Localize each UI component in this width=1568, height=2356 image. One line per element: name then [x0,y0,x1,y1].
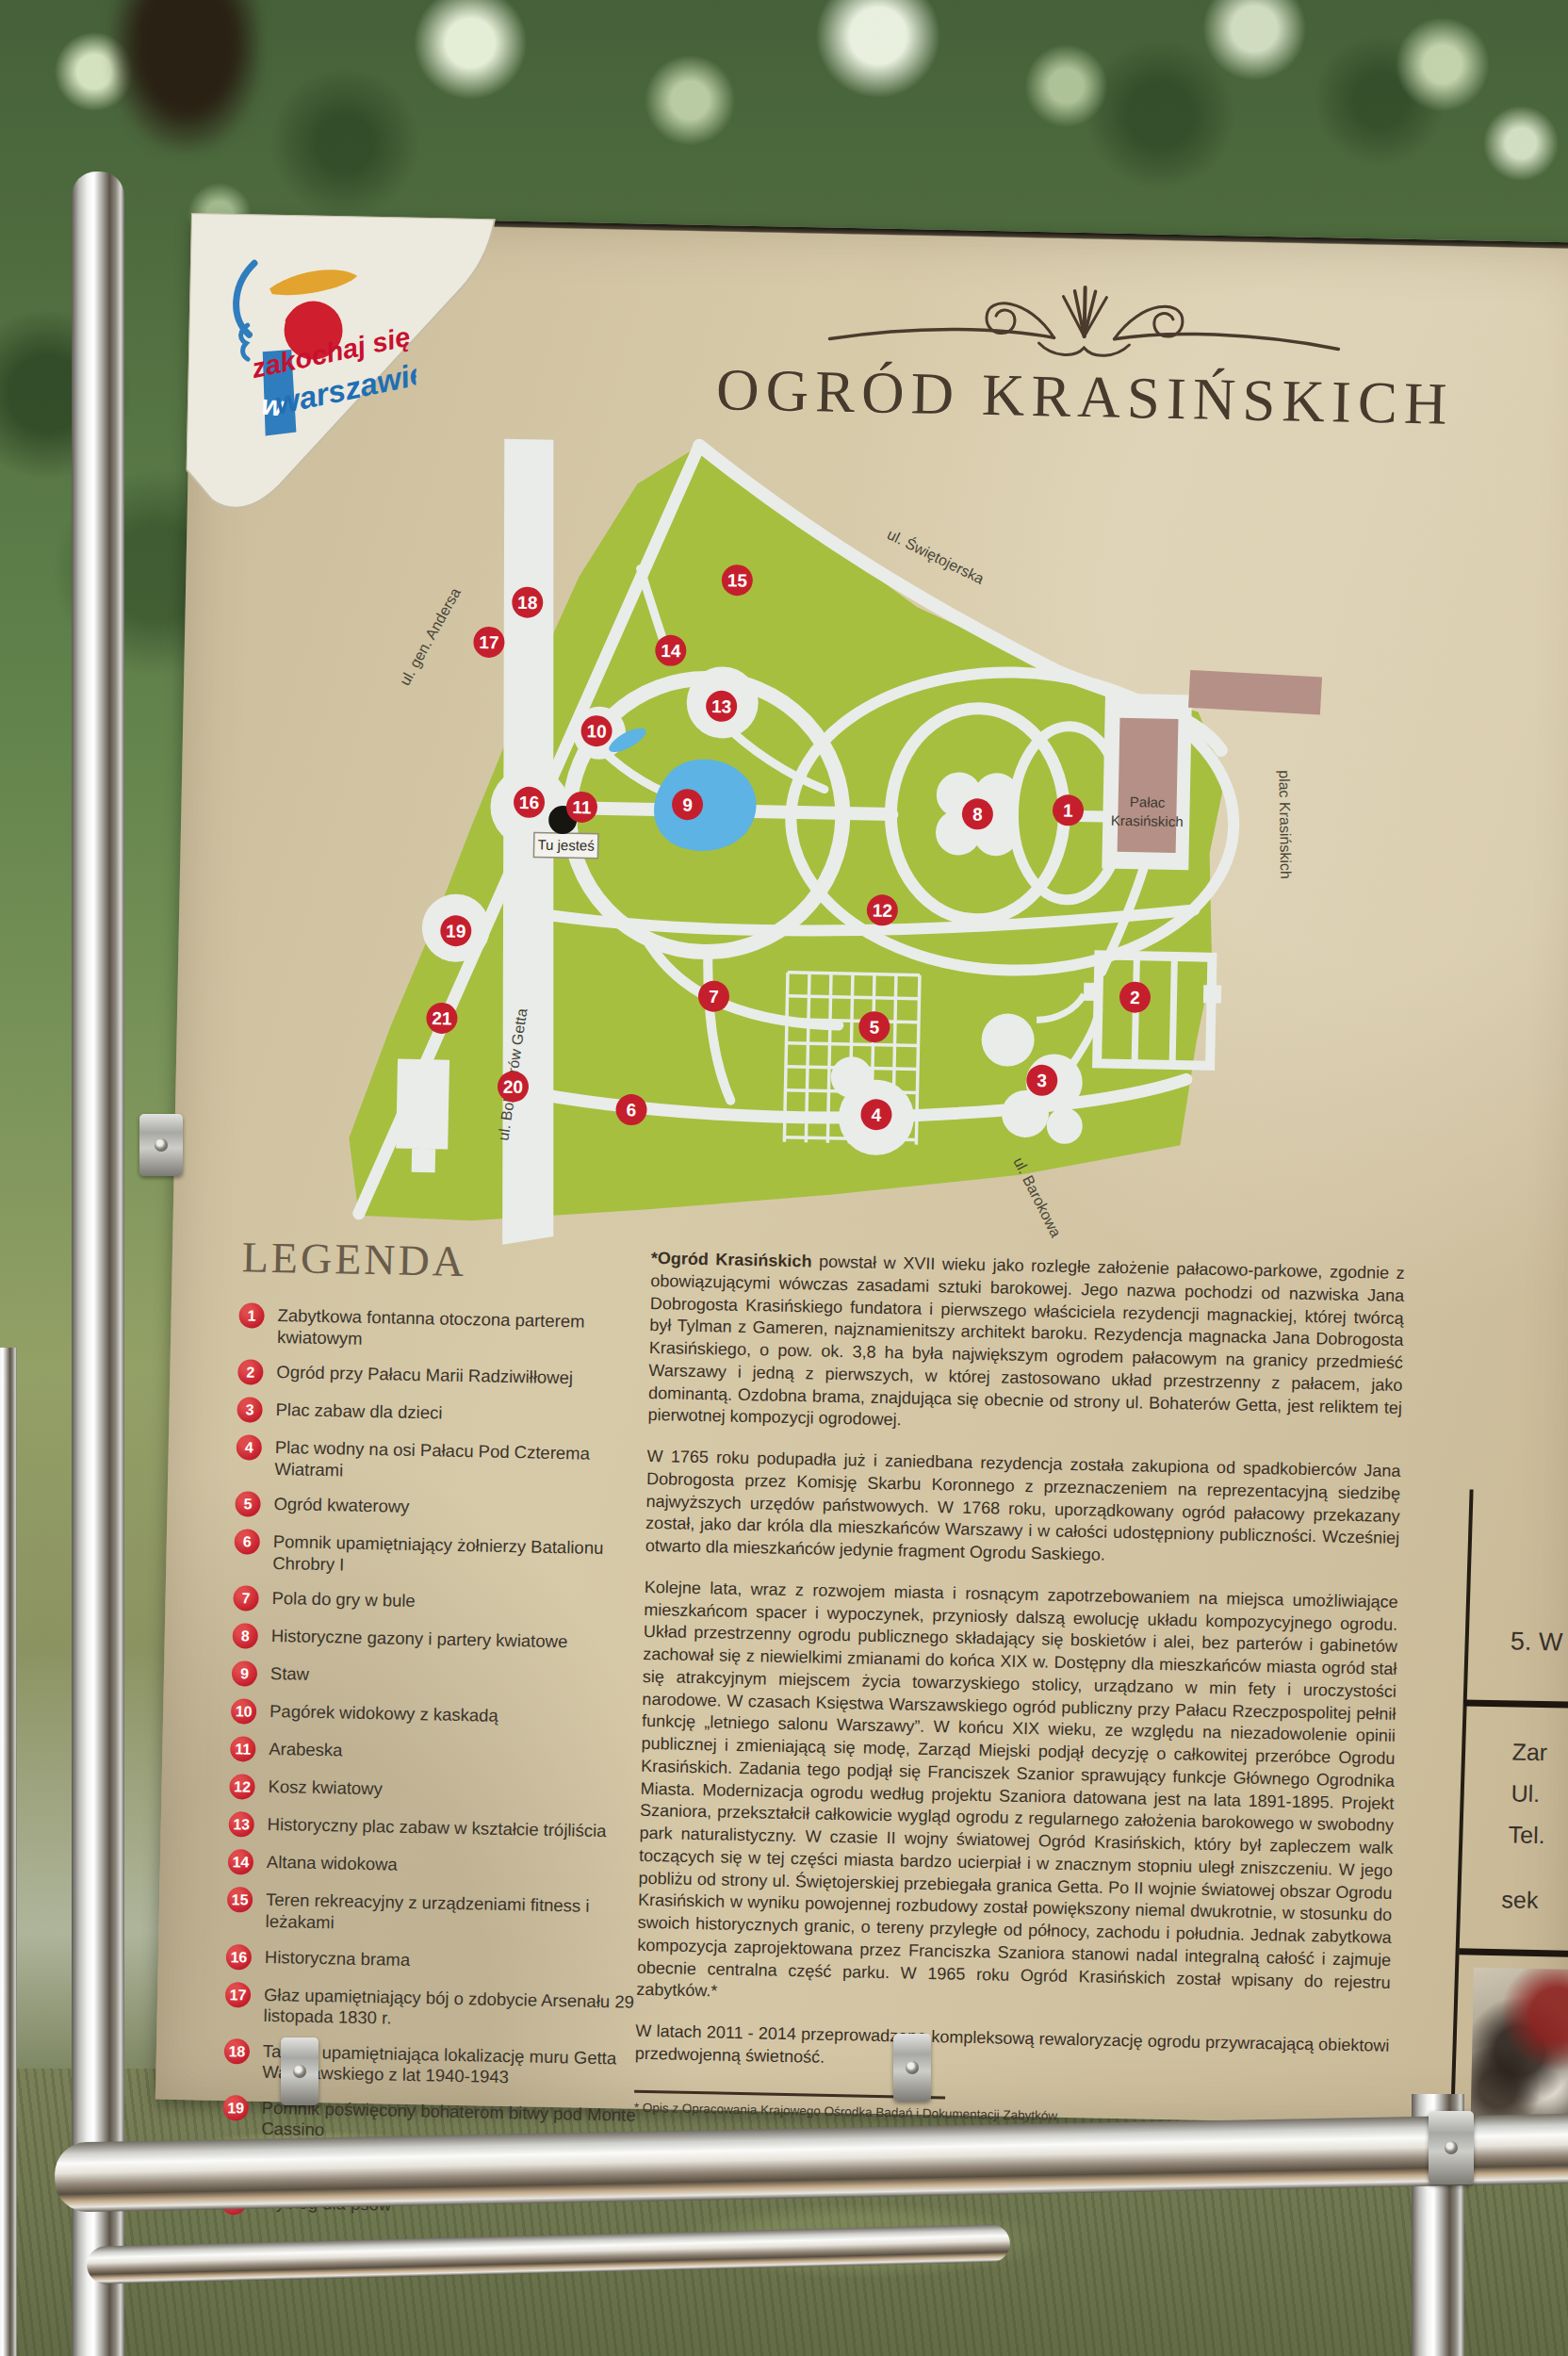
legend-item: 11Arabeska [230,1736,654,1770]
legend-item: 6Pomnik upamiętniający żołnierzy Batalio… [234,1529,659,1581]
svg-text:8: 8 [972,805,983,825]
legend-number-badge: 18 [224,2038,251,2065]
legend-number-badge: 2 [237,1359,264,1385]
legend-item-label: Pola do gry w bule [271,1586,416,1612]
legend-number-badge: 17 [225,1982,252,2008]
legend-number-badge: 16 [226,1944,253,1971]
svg-text:1: 1 [1063,800,1073,820]
weathered-photo-fragment [1471,1968,1568,2120]
mounting-clamp [1429,2111,1474,2184]
paragraphs: *Ogród Krasińskich powstał w XVII wieku … [635,1248,1405,2080]
legend-title: LEGENDA [241,1232,664,1290]
svg-text:2: 2 [1130,988,1140,1007]
svg-text:20: 20 [503,1077,524,1097]
svg-text:13: 13 [711,696,732,716]
legend-item: 1Zabytkowa fontanna otoczona parterem kw… [238,1302,663,1355]
svg-text:19: 19 [446,921,466,941]
legend-item-label: Plac wodny na osi Pałacu Pod Czterema Wi… [274,1435,661,1487]
svg-text:11: 11 [572,797,592,817]
palace-label-line2: Krasińskich [1111,812,1184,830]
svg-text:6: 6 [627,1100,637,1120]
tree-trunk [111,0,262,151]
street-label-plac: plac Krasińskich [1276,770,1294,879]
you-are-here-label: Tu jesteś [537,836,595,853]
legend-item-label: Zabytkowa fontanna otoczona parterem kwi… [277,1303,663,1355]
legend-item-label: Teren rekreacyjny z urządzeniami fitness… [265,1888,651,1939]
park-map: Pałac Krasińskich ul. gen. Andersa ul. Ś… [306,402,1426,1282]
legend-item-label: Głaz upamiętniający bój o zdobycie Arsen… [263,1982,649,2034]
body-paragraph: Kolejne lata, wraz z rozwojem miasta i r… [636,1577,1398,2017]
legend-item: 17Głaz upamiętniający bój o zdobycie Ars… [224,1982,649,2035]
side-panel-rule-top [1464,1699,1568,1709]
photo-of-park-information-sign: { "sign": { "title": "OGRÓD KRASIŃSKICH"… [0,0,1568,2356]
legend-number-badge: 15 [227,1887,253,1913]
side-panel-text: sek [1501,1886,1538,1914]
legend-item: 3Plac zabaw dla dzieci [237,1397,661,1431]
legend-number-badge: 14 [228,1849,254,1875]
legend-item: 10Pagórek widokowy z kaskadą [231,1699,655,1733]
legend-number-badge: 11 [230,1736,256,1762]
legend-number-badge: 3 [237,1397,263,1423]
legend-item: 4Plac wodny na osi Pałacu Pod Czterema W… [236,1434,661,1487]
legend-item-label: Ogród kwaterowy [273,1492,409,1517]
mounting-clamp [281,2037,318,2105]
legend-item-label: Arabeska [269,1737,343,1761]
legend-item-label: Pomnik upamiętniający żołnierzy Batalion… [272,1530,659,1581]
legend-number-badge: 6 [234,1529,260,1555]
body-paragraph: W latach 2011 - 2014 przeprowadzono komp… [635,2021,1390,2081]
svg-text:17: 17 [479,632,499,652]
left-steel-post [72,172,124,2356]
legend-item-label: Plac zabaw dla dzieci [275,1398,442,1424]
legend-number-badge: 9 [232,1661,258,1688]
legend-item-label: Historyczne gazony i partery kwiatowe [271,1624,568,1653]
legend-item-label: Historyczna brama [265,1944,411,1971]
legend-number-badge: 10 [231,1699,257,1726]
side-panel-text: Tel. [1508,1821,1544,1849]
svg-text:7: 7 [709,987,719,1006]
legend-item: 9Staw [232,1661,656,1695]
legend-item-label: Pagórek widokowy z kaskadą [269,1699,498,1726]
svg-text:16: 16 [519,793,540,812]
legend-number-badge: 12 [229,1774,255,1800]
side-panel-rule-bottom [1459,1948,1568,1957]
side-panel-text: Ul. [1511,1779,1540,1808]
svg-text:5: 5 [869,1017,879,1037]
legend-item: 8Historyczne gazony i partery kwiatowe [232,1624,656,1658]
legend-item-label: Staw [270,1661,310,1685]
side-panel-text: 5. W [1511,1627,1563,1657]
svg-text:12: 12 [873,900,893,920]
legend-number-badge: 5 [235,1491,261,1517]
legend-item-label: Altana widokowa [267,1850,398,1875]
svg-text:18: 18 [517,593,538,613]
legend-number-badge: 4 [236,1434,262,1461]
legend-item: 13Historyczny plac zabaw w kształcie tró… [228,1811,652,1845]
body-paragraph: W 1765 roku podupadła już i zaniedbana r… [645,1446,1401,1573]
description-text: *Ogród Krasińskich powstał w XVII wieku … [634,1248,1405,2129]
body-paragraph: *Ogród Krasińskich powstał w XVII wieku … [647,1248,1405,1442]
information-sign-board: w zakochaj się warszawie OGRÓD KRASIŃSKI… [155,215,1568,2128]
mounting-clamp [139,1114,183,1176]
legend-item-label: Tablica upamiętniająca lokalizację muru … [262,2039,648,2091]
svg-text:14: 14 [661,641,681,661]
svg-text:9: 9 [682,794,693,814]
legend-number-badge: 7 [233,1586,259,1612]
legend-item: 14Altana widokowa [228,1849,652,1883]
side-panel-text: Zar [1511,1738,1547,1766]
svg-text:15: 15 [727,570,748,590]
palace-label-line1: Pałac [1130,794,1166,810]
legend-item: 5Ogród kwaterowy [235,1491,659,1525]
legend-item: 12Kosz kwiatowy [229,1774,653,1808]
side-panel-divider [1450,1489,1473,2116]
legend-number-badge: 13 [228,1811,254,1838]
mounting-clamp [893,2034,931,2102]
legend-item: 15Teren rekreacyjny z urządzeniami fitne… [226,1887,651,1939]
svg-text:21: 21 [432,1008,452,1028]
street-label-andersa: ul. gen. Andersa [397,585,464,688]
legend-item-label: Ogród przy Pałacu Marii Radziwiłłowej [276,1360,573,1389]
legend-item-label: Kosz kwiatowy [268,1775,383,1800]
svg-text:3: 3 [1037,1071,1047,1090]
legend-item-label: Historyczny plac zabaw w kształcie trójl… [267,1812,606,1842]
legend-number-badge: 1 [238,1302,265,1329]
legend-item: 7Pola do gry w bule [233,1586,657,1620]
left-edge-post-sliver [0,1348,17,2356]
legend-number-badge: 8 [232,1624,258,1650]
map-marker-17: 17 [473,627,505,659]
legend-number-badge: 19 [222,2095,249,2121]
paragraph-lead: *Ogród Krasińskich [651,1249,820,1271]
legend-item: 2Ogród przy Pałacu Marii Radziwiłłowej [237,1359,661,1393]
legend-item: 16Historyczna brama [226,1944,650,1978]
svg-text:4: 4 [871,1104,881,1124]
svg-text:10: 10 [586,721,607,741]
